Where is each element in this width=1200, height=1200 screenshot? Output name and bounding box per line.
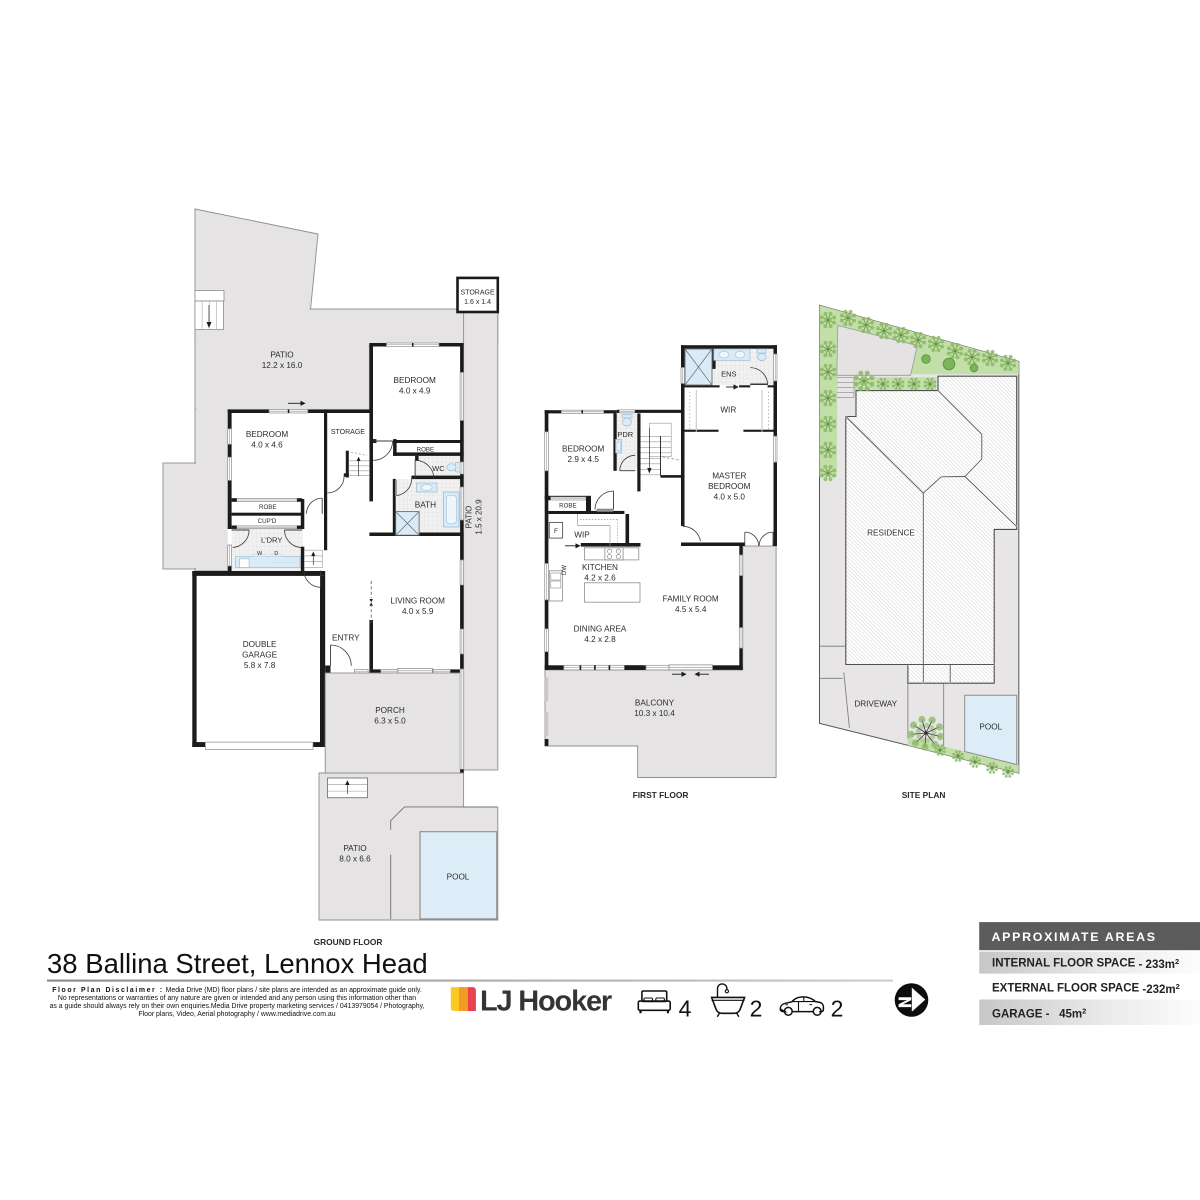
svg-text:FIRST FLOOR: FIRST FLOOR xyxy=(633,790,689,800)
svg-text:RESIDENCE: RESIDENCE xyxy=(867,529,915,538)
svg-text:PATIO: PATIO xyxy=(465,506,474,529)
svg-text:10.3 x 10.4: 10.3 x 10.4 xyxy=(634,709,675,718)
svg-text:WIR: WIR xyxy=(720,406,736,415)
svg-text:4.0 x 5.9: 4.0 x 5.9 xyxy=(402,607,434,616)
svg-text:BEDROOM: BEDROOM xyxy=(562,445,604,454)
svg-text:Floor plans, Video, Aerial ph: Floor plans, Video, Aerial photography /… xyxy=(138,1011,335,1018)
svg-text:4.5 x 5.4: 4.5 x 5.4 xyxy=(675,605,707,614)
svg-text:D: D xyxy=(274,551,278,557)
svg-text:STORAGE: STORAGE xyxy=(331,429,365,436)
svg-text:4.0 x 4.9: 4.0 x 4.9 xyxy=(399,387,431,396)
svg-text:4.0 x 4.6: 4.0 x 4.6 xyxy=(251,441,283,450)
svg-text:POOL: POOL xyxy=(979,723,1002,732)
svg-text:EXTERNAL FLOOR SPACE -232m2: EXTERNAL FLOOR SPACE -232m2 xyxy=(992,982,1180,996)
svg-text:6.3 x 5.0: 6.3 x 5.0 xyxy=(374,717,406,726)
svg-text:DW: DW xyxy=(562,565,568,575)
svg-text:12.2 x 16.0: 12.2 x 16.0 xyxy=(262,361,303,370)
svg-text:4.0 x 5.0: 4.0 x 5.0 xyxy=(714,493,746,502)
svg-text:LIVING ROOM: LIVING ROOM xyxy=(390,597,445,606)
svg-text:4: 4 xyxy=(679,996,692,1022)
svg-text:GARAGE: GARAGE xyxy=(242,651,278,660)
svg-text:ROBE: ROBE xyxy=(259,504,277,511)
svg-text:as a guide should always rely: as a guide should always rely on their o… xyxy=(50,1003,425,1010)
svg-text:SITE PLAN: SITE PLAN xyxy=(902,790,946,800)
svg-text:ENTRY: ENTRY xyxy=(332,634,360,643)
svg-text:LJ Hooker: LJ Hooker xyxy=(480,986,612,1018)
svg-text:L'DRY: L'DRY xyxy=(261,536,282,545)
svg-text:CUP'D: CUP'D xyxy=(258,518,277,525)
svg-text:BEDROOM: BEDROOM xyxy=(394,376,436,385)
svg-text:GROUND FLOOR: GROUND FLOOR xyxy=(314,937,383,947)
svg-text:8.0 x 6.6: 8.0 x 6.6 xyxy=(339,855,371,864)
svg-text:38 Ballina Street, Lennox Head: 38 Ballina Street, Lennox Head xyxy=(47,948,428,979)
svg-text:STORAGE: STORAGE xyxy=(461,290,495,297)
svg-text:PDR: PDR xyxy=(617,430,633,439)
svg-text:PATIO: PATIO xyxy=(343,844,366,853)
svg-text:ENS: ENS xyxy=(721,370,736,379)
svg-text:PORCH: PORCH xyxy=(375,706,405,715)
svg-text:BALCONY: BALCONY xyxy=(635,699,675,708)
svg-text:ROBE: ROBE xyxy=(417,447,435,454)
svg-text:2.9 x 4.5: 2.9 x 4.5 xyxy=(567,455,599,464)
svg-text:WC: WC xyxy=(432,464,445,473)
svg-text:MASTER: MASTER xyxy=(712,472,746,481)
svg-text:4.2 x 2.6: 4.2 x 2.6 xyxy=(584,574,616,583)
svg-text:DINING AREA: DINING AREA xyxy=(574,625,627,634)
svg-text:GARAGE - 45m2: GARAGE - 45m2 xyxy=(992,1007,1086,1021)
svg-text:FAMILY ROOM: FAMILY ROOM xyxy=(663,595,719,604)
svg-text:5.8 x 7.8: 5.8 x 7.8 xyxy=(244,661,276,670)
svg-text:DOUBLE: DOUBLE xyxy=(243,640,277,649)
svg-text:DRIVEWAY: DRIVEWAY xyxy=(854,700,897,709)
svg-text:BEDROOM: BEDROOM xyxy=(246,430,288,439)
svg-text:KITCHEN: KITCHEN xyxy=(582,563,618,572)
svg-text:No representations or warranti: No representations or warranties of any … xyxy=(58,995,416,1002)
svg-text:BATH: BATH xyxy=(415,501,436,510)
svg-text:W: W xyxy=(257,551,263,557)
svg-text:ROBE: ROBE xyxy=(559,503,577,510)
svg-text:1.5 x 20.9: 1.5 x 20.9 xyxy=(475,499,484,535)
svg-text:Floor Plan Disclaimer : Media: Floor Plan Disclaimer : Media Drive (MD)… xyxy=(52,987,422,994)
svg-text:2: 2 xyxy=(831,996,844,1022)
svg-text:BEDROOM: BEDROOM xyxy=(708,482,750,491)
svg-text:POOL: POOL xyxy=(447,873,470,882)
svg-text:PATIO: PATIO xyxy=(270,351,293,360)
svg-text:INTERNAL FLOOR SPACE - 233m2: INTERNAL FLOOR SPACE - 233m2 xyxy=(992,957,1179,971)
svg-text:2: 2 xyxy=(750,996,763,1022)
svg-text:APPROXIMATE AREAS: APPROXIMATE AREAS xyxy=(992,930,1157,944)
svg-text:F: F xyxy=(554,528,558,535)
svg-text:1.6 x 1.4: 1.6 x 1.4 xyxy=(464,299,491,306)
svg-text:4.2 x 2.8: 4.2 x 2.8 xyxy=(584,635,616,644)
svg-text:WIP: WIP xyxy=(574,531,590,540)
